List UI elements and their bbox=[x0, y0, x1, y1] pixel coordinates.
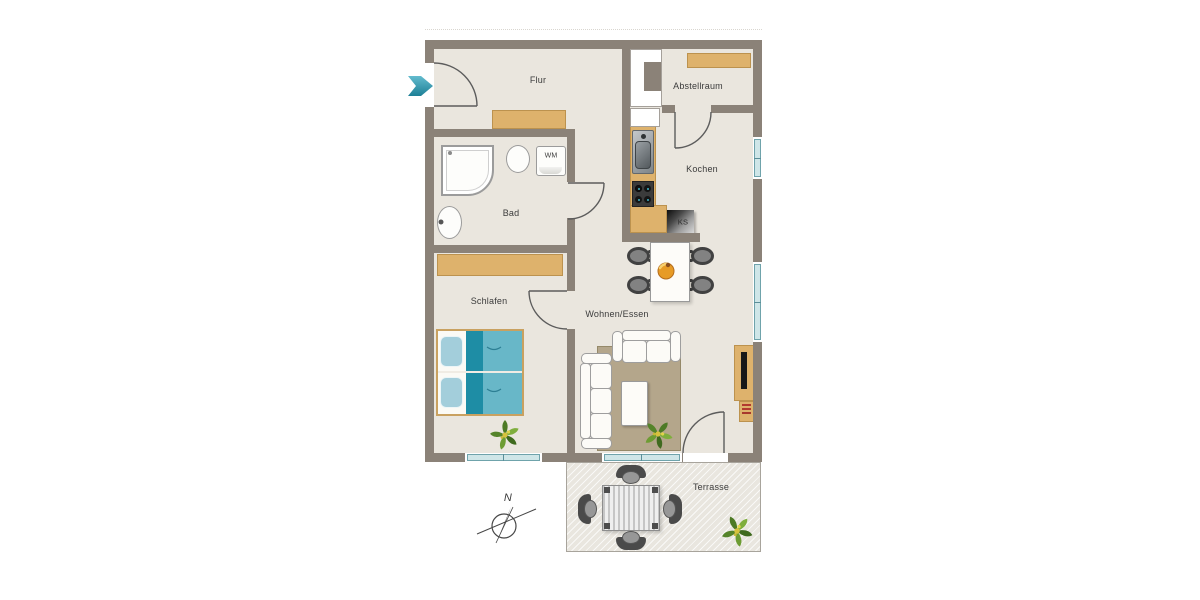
room-label-flur: Flur bbox=[530, 75, 546, 85]
sink-faucet bbox=[641, 134, 646, 139]
sofa-cushion bbox=[590, 413, 612, 439]
burner bbox=[644, 196, 651, 203]
wall-left bbox=[425, 107, 434, 462]
shelf-items bbox=[742, 412, 751, 414]
toilet-icon bbox=[506, 145, 530, 173]
window-icon bbox=[604, 454, 680, 461]
wall-top bbox=[425, 40, 762, 49]
wall-hall-bath bbox=[434, 129, 575, 137]
table-corner bbox=[604, 523, 610, 529]
window-mullion bbox=[754, 158, 761, 159]
pillow bbox=[440, 377, 463, 408]
terrace-chair-icon bbox=[616, 530, 646, 550]
shaft-block bbox=[644, 62, 661, 91]
terrace-chair-icon bbox=[616, 465, 646, 485]
window-mullion bbox=[641, 454, 642, 461]
terrace-chair-icon bbox=[662, 494, 682, 524]
wall-bedroom-living bbox=[567, 329, 575, 453]
compass-north-label: N bbox=[504, 492, 512, 504]
bedroom-wardrobe bbox=[437, 254, 563, 276]
sofa-cushion bbox=[590, 388, 612, 414]
room-label-wohnen-essen: Wohnen/Essen bbox=[585, 309, 648, 319]
table-corner bbox=[604, 487, 610, 493]
burner bbox=[635, 185, 642, 192]
compass-icon bbox=[477, 507, 536, 543]
wall-right bbox=[753, 49, 762, 453]
sofa-armrest bbox=[670, 331, 681, 362]
room-label-kochen: Kochen bbox=[686, 164, 718, 174]
sofa-cushion bbox=[622, 340, 647, 363]
floorplan-canvas: KS WM bbox=[0, 0, 1200, 600]
entry-door-gap bbox=[425, 63, 434, 107]
shelf-items bbox=[742, 408, 751, 410]
burner-dot bbox=[647, 199, 649, 201]
bed-icon bbox=[436, 329, 524, 416]
shower-icon bbox=[441, 145, 494, 196]
washing-machine bbox=[536, 146, 566, 176]
table-corner bbox=[652, 523, 658, 529]
dining-chair bbox=[691, 247, 714, 265]
dining-chair bbox=[627, 247, 650, 265]
wall-kitchen-living bbox=[622, 233, 700, 242]
ventilation-shaft bbox=[630, 49, 662, 107]
dining-table-icon bbox=[650, 242, 690, 302]
wall-bath-bedroom bbox=[434, 245, 575, 253]
sofa-icon bbox=[580, 353, 613, 449]
kitchen-worktop bbox=[630, 108, 660, 127]
wall-storage-kitchen bbox=[711, 105, 753, 113]
terrace-chair-icon bbox=[578, 494, 598, 524]
tv-icon bbox=[741, 352, 747, 389]
burner-dot bbox=[638, 199, 640, 201]
window-mullion bbox=[754, 302, 761, 303]
tv-lowboard-icon bbox=[734, 345, 754, 401]
burner bbox=[644, 185, 651, 192]
room-label-abstellraum: Abstellraum bbox=[673, 81, 723, 91]
burner-dot bbox=[638, 188, 640, 190]
sofa-cushion bbox=[590, 363, 612, 389]
coffee-table-icon bbox=[621, 381, 648, 426]
sofa-cushion bbox=[646, 340, 671, 363]
kitchen-sink-icon bbox=[632, 130, 654, 174]
washing-machine-label: WM bbox=[545, 153, 558, 160]
sofa-icon bbox=[612, 330, 681, 364]
wm-door-shade bbox=[539, 167, 562, 174]
media-shelf bbox=[739, 401, 754, 422]
room-label-bad: Bad bbox=[503, 208, 520, 218]
guide-dotted-line bbox=[425, 29, 762, 31]
bath-sink-icon bbox=[437, 206, 462, 239]
room-label-terrasse: Terrasse bbox=[693, 482, 729, 492]
terrace-table-icon bbox=[602, 485, 660, 531]
burner bbox=[635, 196, 642, 203]
hall-wardrobe bbox=[492, 110, 566, 129]
kitchen-counter-corner bbox=[630, 205, 667, 233]
dining-chair bbox=[627, 276, 650, 294]
wall-storage-kitchen bbox=[662, 105, 675, 113]
window-mullion bbox=[503, 454, 504, 461]
wall-left bbox=[425, 40, 434, 63]
wall-bath-living bbox=[567, 218, 575, 291]
sink-basin bbox=[635, 141, 651, 169]
wall-hall-kitchen bbox=[622, 49, 630, 242]
dining-chair bbox=[691, 276, 714, 294]
pillow bbox=[440, 336, 463, 367]
wall-bath-living bbox=[567, 137, 575, 182]
stove-icon bbox=[632, 181, 654, 207]
sofa-armrest bbox=[581, 438, 612, 449]
terrace-door-gap bbox=[683, 453, 728, 462]
room-label-schlafen: Schlafen bbox=[471, 296, 508, 306]
storage-shelf bbox=[687, 53, 751, 68]
burner-dot bbox=[647, 188, 649, 190]
shelf-items bbox=[742, 404, 751, 406]
fridge-label: KS bbox=[678, 218, 688, 227]
table-corner bbox=[652, 487, 658, 493]
bed-divider bbox=[438, 371, 522, 373]
